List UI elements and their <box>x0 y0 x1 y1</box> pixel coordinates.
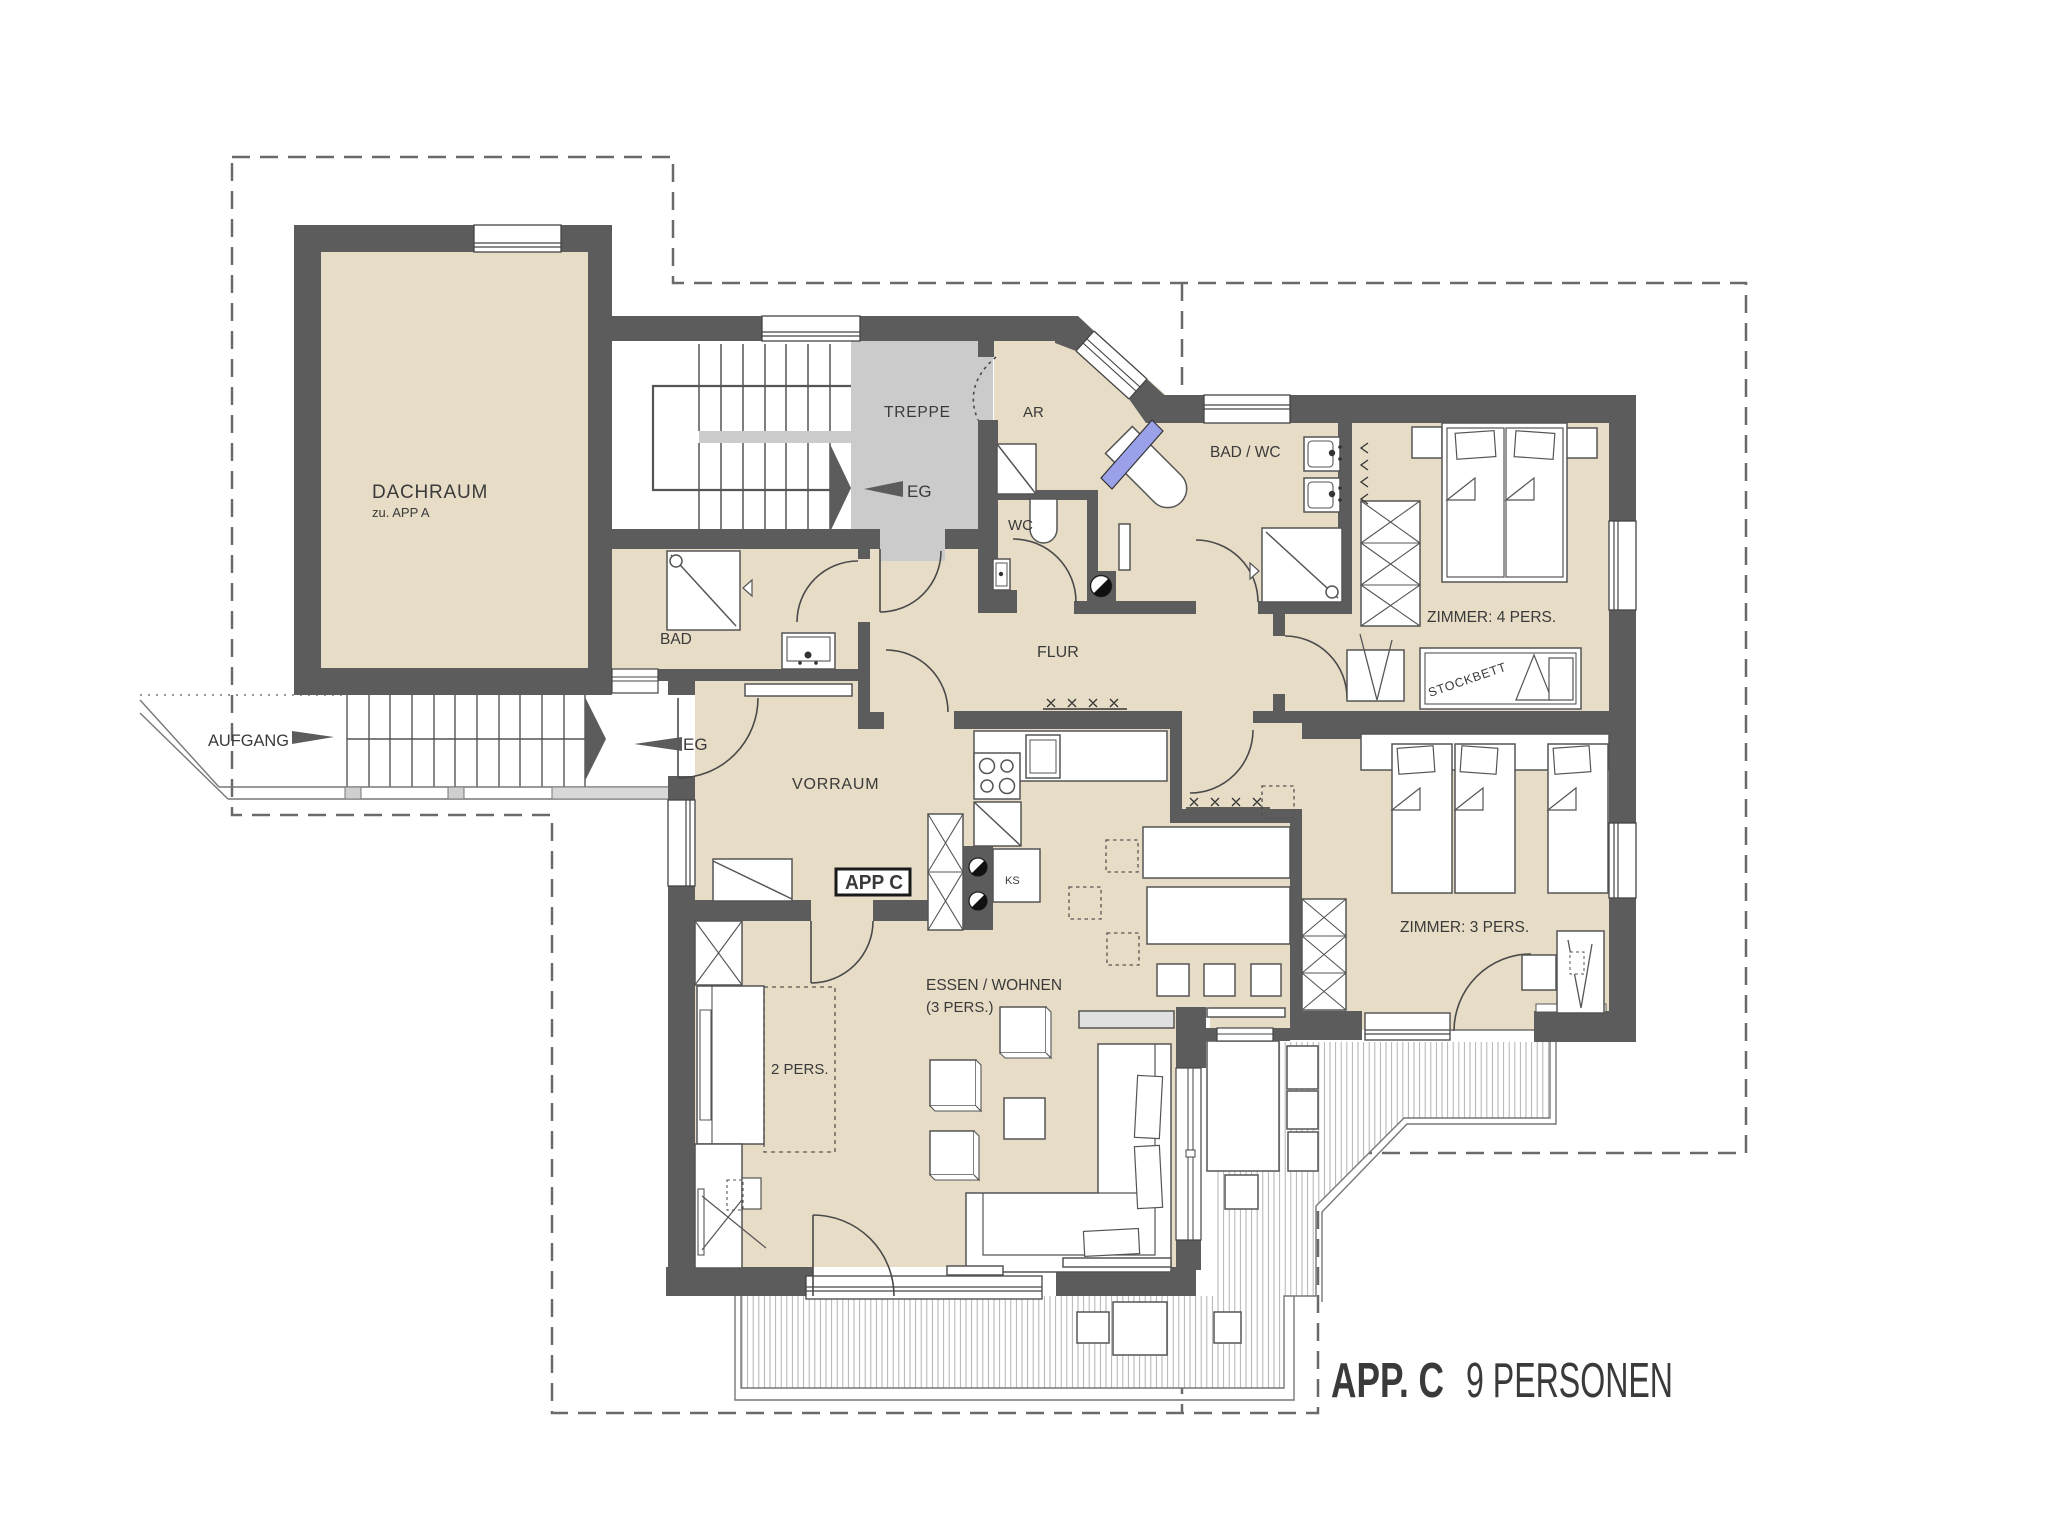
svg-text:9 PERSONEN: 9 PERSONEN <box>1466 1354 1673 1408</box>
svg-text:AUFGANG: AUFGANG <box>208 731 289 750</box>
svg-text:BAD / WC: BAD / WC <box>1210 444 1281 461</box>
svg-text:VORRAUM: VORRAUM <box>792 776 879 793</box>
svg-text:TREPPE: TREPPE <box>884 404 951 421</box>
svg-text:AR: AR <box>1023 404 1044 421</box>
svg-text:KS: KS <box>1005 875 1020 887</box>
svg-text:APP C: APP C <box>845 872 903 894</box>
svg-text:BAD: BAD <box>660 631 692 648</box>
svg-text:WC: WC <box>1008 517 1033 534</box>
svg-text:DACHRAUM: DACHRAUM <box>372 482 488 503</box>
svg-text:(3 PERS.): (3 PERS.) <box>926 999 994 1016</box>
svg-text:ZIMMER: 4 PERS.: ZIMMER: 4 PERS. <box>1427 609 1556 626</box>
svg-text:EG: EG <box>907 482 932 501</box>
svg-text:ESSEN / WOHNEN: ESSEN / WOHNEN <box>926 977 1062 994</box>
svg-text:2 PERS.: 2 PERS. <box>771 1061 829 1078</box>
svg-text:APP. C: APP. C <box>1331 1354 1444 1408</box>
svg-text:EG: EG <box>683 735 708 754</box>
svg-text:FLUR: FLUR <box>1037 644 1079 661</box>
svg-text:ZIMMER: 3 PERS.: ZIMMER: 3 PERS. <box>1400 919 1529 936</box>
svg-text:zu. APP A: zu. APP A <box>372 505 430 520</box>
